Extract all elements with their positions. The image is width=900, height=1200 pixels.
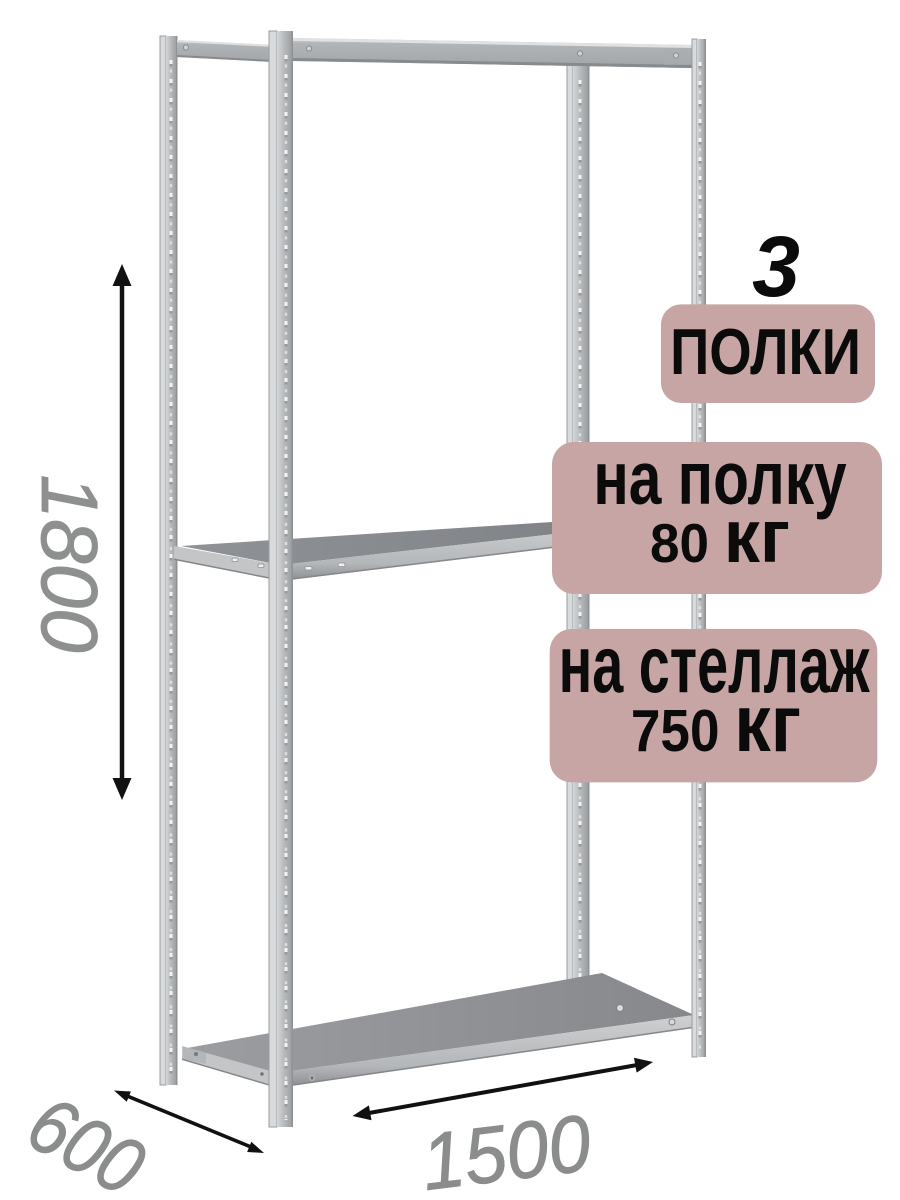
- svg-text:3: 3: [752, 219, 800, 315]
- svg-text:ПОЛКИ: ПОЛКИ: [670, 316, 861, 388]
- svg-text:600: 600: [14, 1078, 159, 1200]
- svg-text:1500: 1500: [417, 1097, 596, 1200]
- svg-text:на полку: на полку: [593, 437, 847, 521]
- svg-text:на стеллаж: на стеллаж: [559, 619, 870, 710]
- svg-text:1800: 1800: [25, 475, 114, 653]
